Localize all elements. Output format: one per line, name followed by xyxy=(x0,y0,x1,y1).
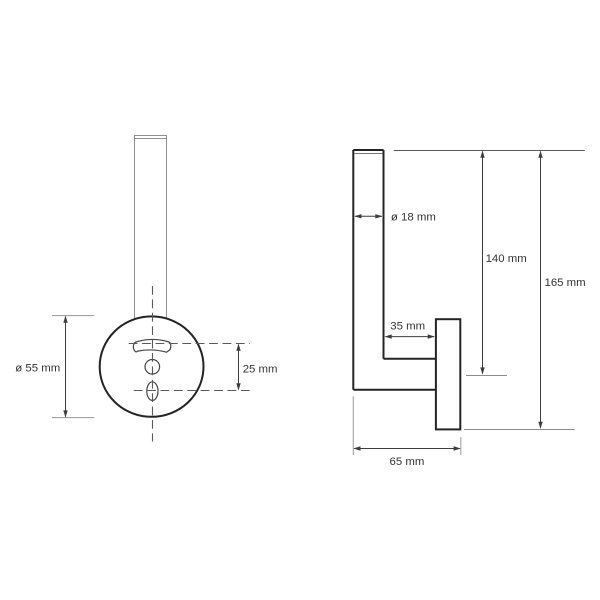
svg-text:140 mm: 140 mm xyxy=(486,253,527,265)
svg-text:35 mm: 35 mm xyxy=(390,321,425,333)
svg-text:ø 55 mm: ø 55 mm xyxy=(15,362,60,374)
svg-text:65 mm: 65 mm xyxy=(390,456,425,468)
svg-text:25 mm: 25 mm xyxy=(243,363,278,375)
svg-text:ø 18 mm: ø 18 mm xyxy=(391,211,436,223)
svg-text:165 mm: 165 mm xyxy=(545,277,586,289)
